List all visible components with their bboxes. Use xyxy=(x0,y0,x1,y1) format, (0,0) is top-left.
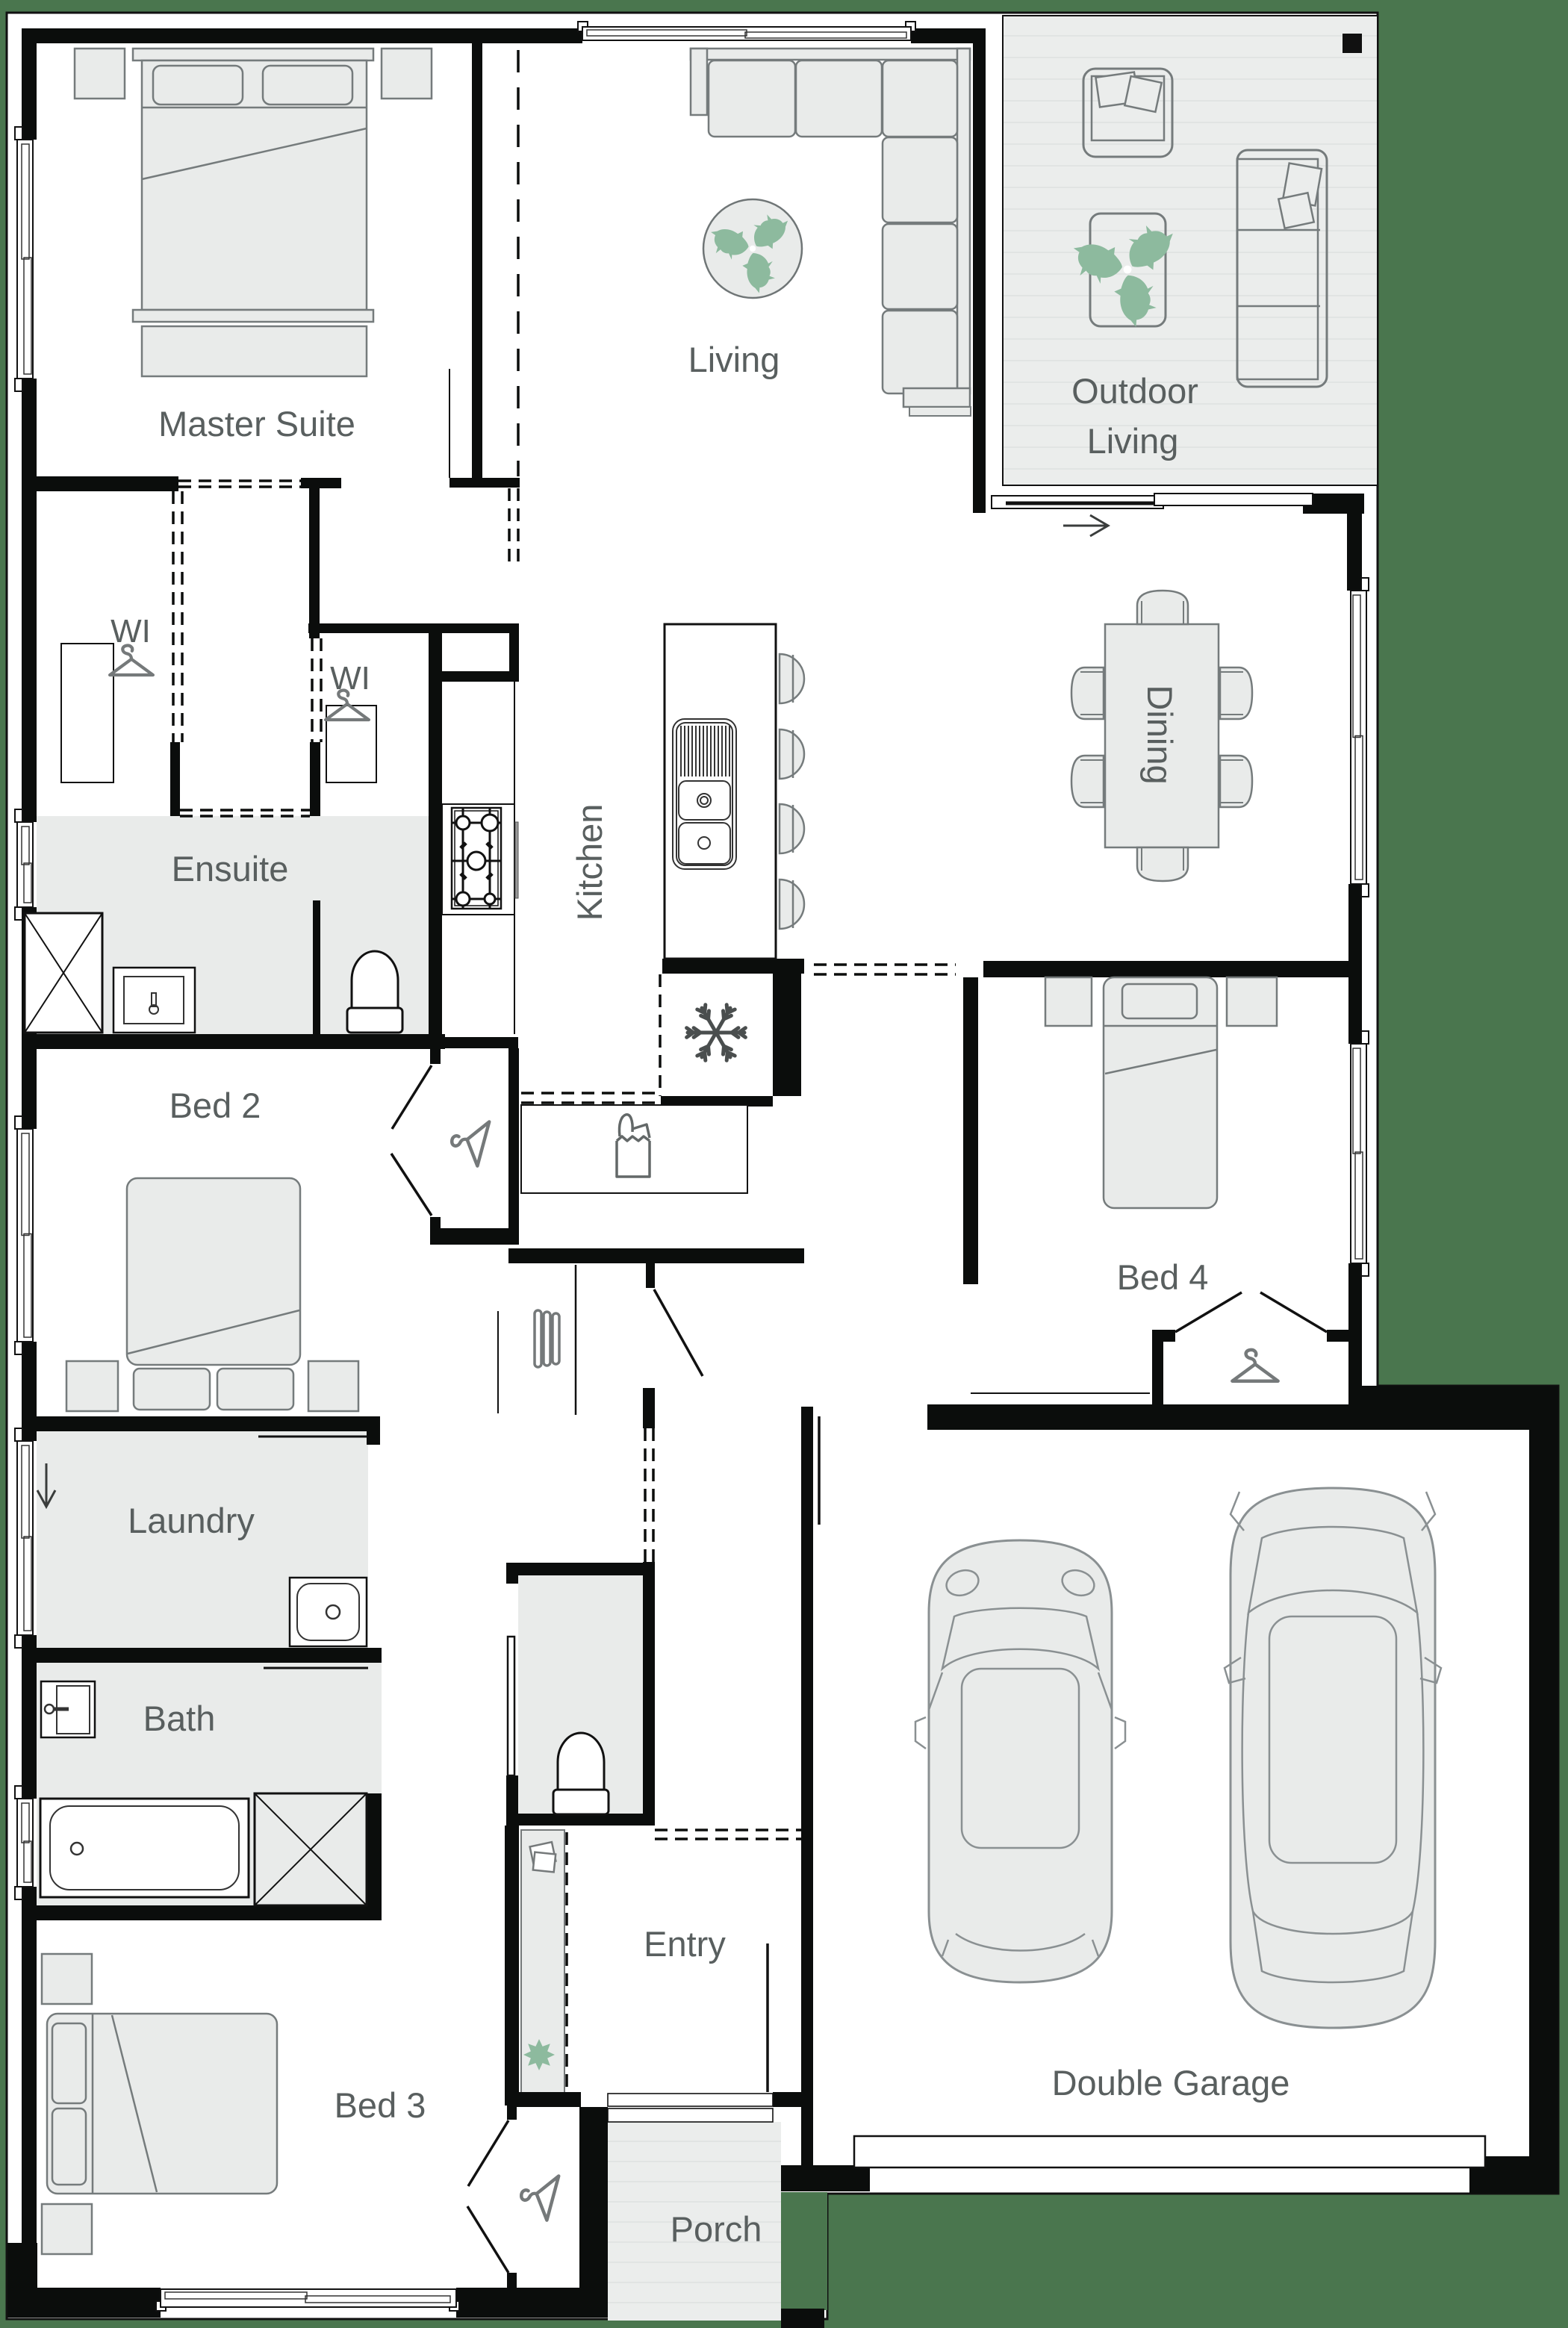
svg-text:Bed 4: Bed 4 xyxy=(1117,1257,1209,1297)
svg-text:Porch: Porch xyxy=(671,2209,762,2249)
svg-text:Kitchen: Kitchen xyxy=(570,804,609,921)
svg-text:Entry: Entry xyxy=(644,1924,726,1964)
svg-text:WI: WI xyxy=(111,613,151,650)
svg-text:Bath: Bath xyxy=(143,1699,216,1738)
svg-text:Outdoor: Outdoor xyxy=(1071,371,1198,411)
svg-text:Double Garage: Double Garage xyxy=(1052,2063,1290,2103)
svg-text:Dining: Dining xyxy=(1140,685,1180,784)
svg-text:WI: WI xyxy=(330,660,370,697)
svg-text:Laundry: Laundry xyxy=(128,1501,255,1540)
svg-text:Master Suite: Master Suite xyxy=(158,404,355,443)
svg-text:Living: Living xyxy=(1087,421,1179,461)
svg-text:Living: Living xyxy=(688,340,780,379)
svg-text:Ensuite: Ensuite xyxy=(172,849,289,888)
svg-text:Bed 2: Bed 2 xyxy=(169,1086,261,1125)
svg-text:Bed 3: Bed 3 xyxy=(335,2085,426,2125)
